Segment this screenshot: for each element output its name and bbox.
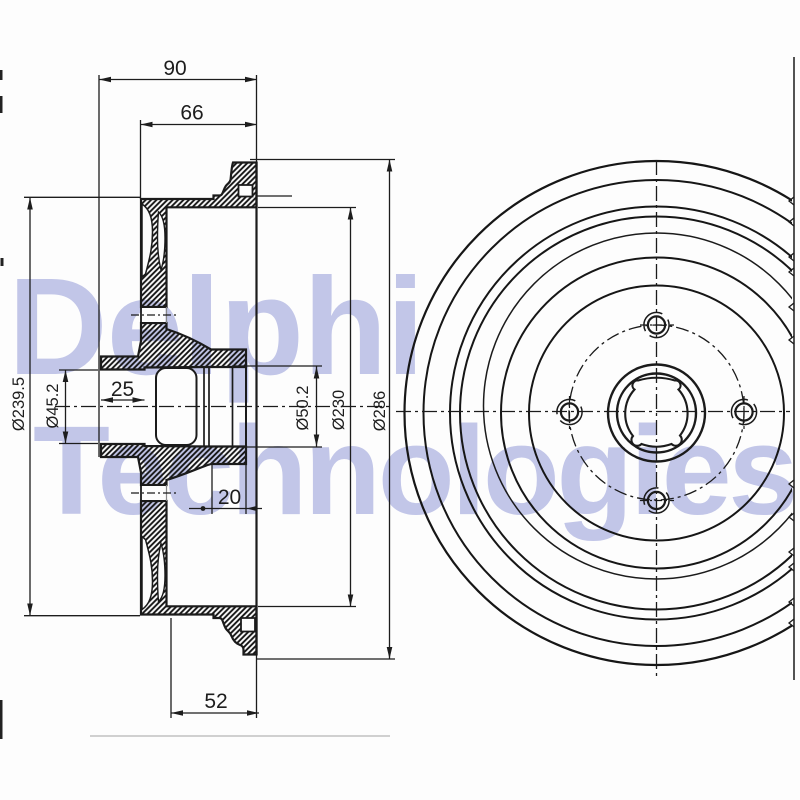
svg-text:Ø239.5: Ø239.5 [10, 377, 28, 431]
svg-text:Ø45.2: Ø45.2 [44, 384, 62, 429]
svg-text:Ø230: Ø230 [330, 390, 348, 430]
svg-text:52: 52 [204, 690, 227, 713]
svg-text:Delphi: Delphi [8, 250, 424, 404]
svg-text:20: 20 [218, 486, 241, 509]
svg-text:25: 25 [111, 378, 134, 401]
svg-text:Ø50.2: Ø50.2 [294, 386, 312, 431]
svg-text:90: 90 [163, 57, 186, 80]
svg-text:Ø286: Ø286 [371, 391, 389, 431]
svg-text:66: 66 [180, 102, 203, 125]
